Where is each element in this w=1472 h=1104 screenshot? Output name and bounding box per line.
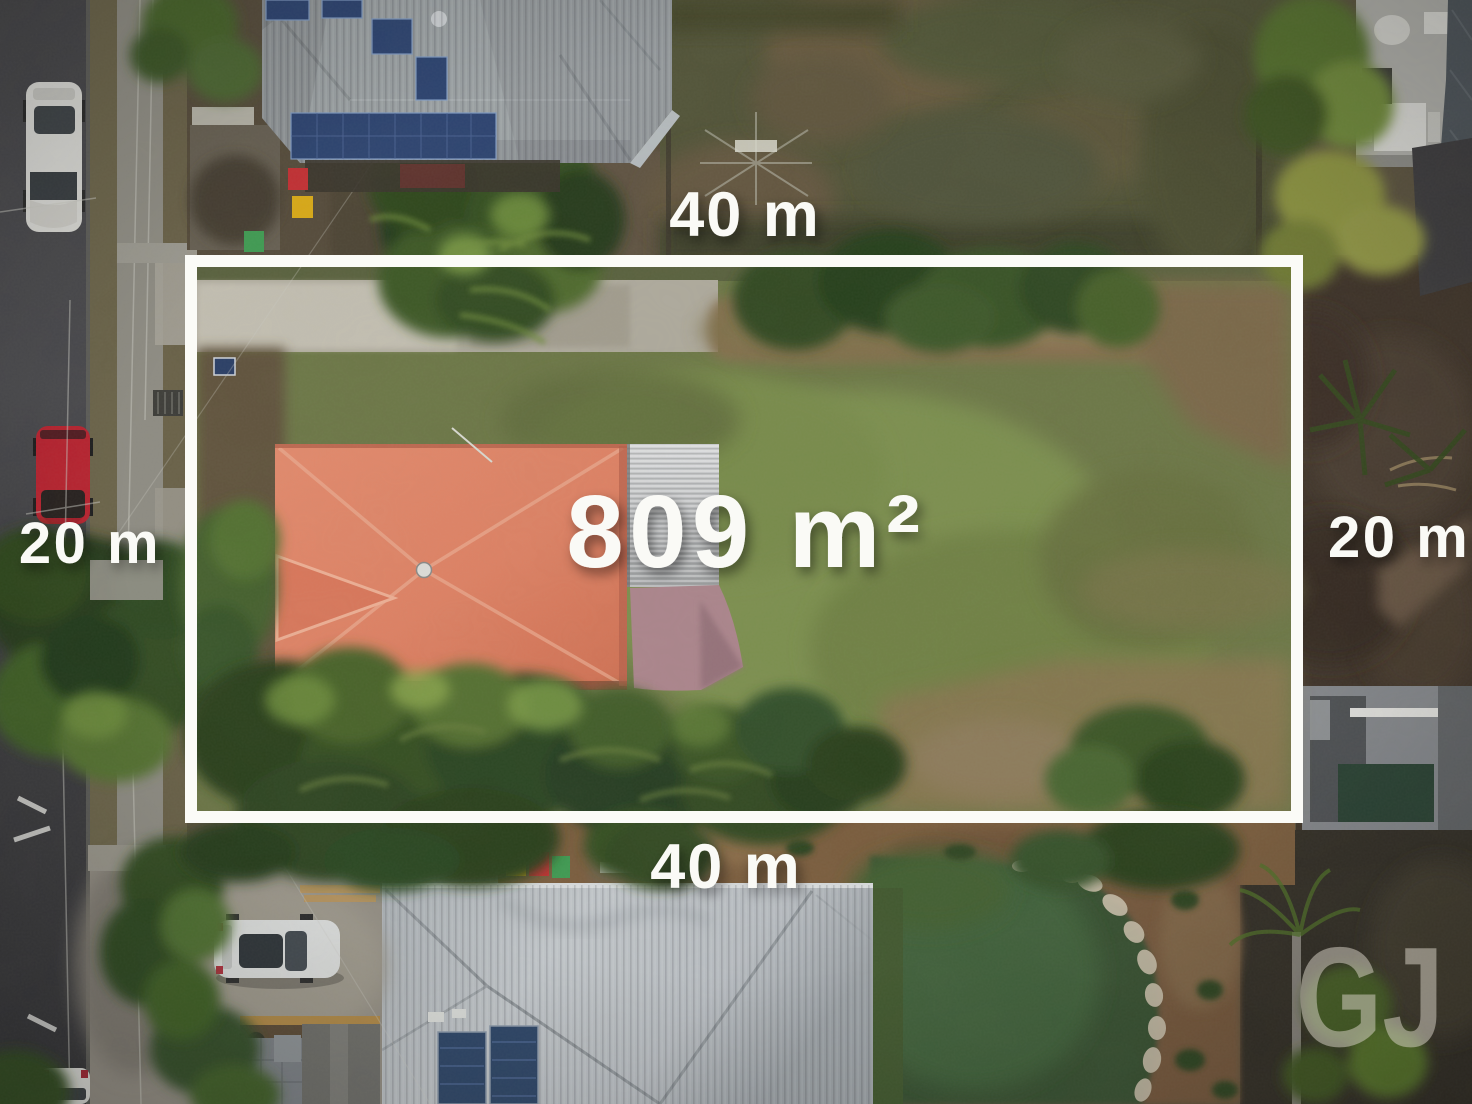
svg-text:809 m²: 809 m² [566,474,925,589]
svg-text:20 m: 20 m [19,511,161,576]
svg-text:40 m: 40 m [650,832,802,902]
svg-text:GJ: GJ [1296,918,1444,1077]
svg-text:40 m: 40 m [669,180,821,250]
svg-text:20 m: 20 m [1328,505,1470,570]
